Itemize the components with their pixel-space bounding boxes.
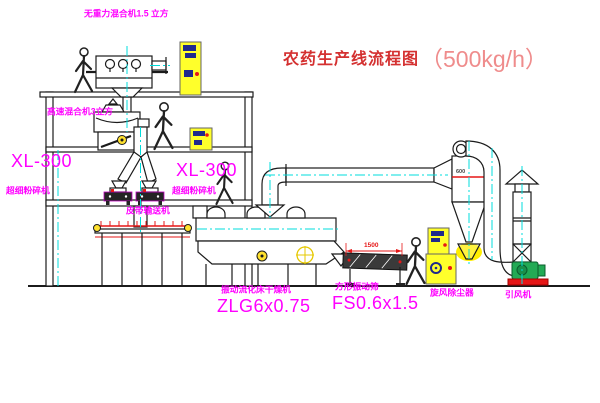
label-dryer-model: ZLG6x0.75 xyxy=(217,297,311,315)
person-roof xyxy=(75,48,92,92)
exhaust-duct xyxy=(256,159,452,217)
label-mill-left-model: XL-300 xyxy=(11,152,72,170)
label-mill-mid-name: 超细粉碎机 xyxy=(172,187,216,196)
label-gravity-free-mixer: 无重力混合机1.5 立方 xyxy=(84,10,169,19)
induced-draft-fan xyxy=(508,262,548,285)
control-cabinet-floor2 xyxy=(190,128,212,150)
title-text: 农药生产线流程图 xyxy=(283,45,419,69)
person-floor2 xyxy=(155,103,173,149)
page-title: 农药生产线流程图 （500kg/h） xyxy=(283,40,548,74)
belt-conveyor xyxy=(94,221,192,285)
label-mill-mid-model: XL-300 xyxy=(176,161,237,179)
control-cabinet-roof xyxy=(180,42,201,95)
label-belt-conveyor: 皮带输送机 xyxy=(126,207,170,216)
label-fan: 引风机 xyxy=(505,291,531,300)
label-cyclone: 旋风除尘器 xyxy=(430,289,474,298)
label-mill-left-name: 超细粉碎机 xyxy=(6,187,50,196)
label-sieve-model: FS0.6x1.5 xyxy=(332,294,419,312)
person-ground xyxy=(407,238,425,284)
fluid-bed-dryer xyxy=(193,206,350,285)
control-cabinet-right-upper xyxy=(428,228,449,254)
label-dryer-name: 振动流化床干燥机 xyxy=(221,286,291,295)
diagram-canvas: 农药生产线流程图 （500kg/h） 无重力混合机1.5 立方 高速混合机3立方… xyxy=(0,0,600,403)
label-dimension-1500: 1500 xyxy=(364,243,378,250)
control-cabinet-right-lower xyxy=(426,254,456,284)
label-sieve-name: 方形振动筛 xyxy=(335,283,379,292)
vibrating-sieve xyxy=(343,253,407,286)
label-cyclone-diameter: 600 xyxy=(456,170,465,176)
title-capacity: （500kg/h） xyxy=(420,40,548,74)
label-high-speed-mixer: 高速混合机3立方 xyxy=(47,108,113,117)
gravity-free-mixer xyxy=(86,56,170,112)
